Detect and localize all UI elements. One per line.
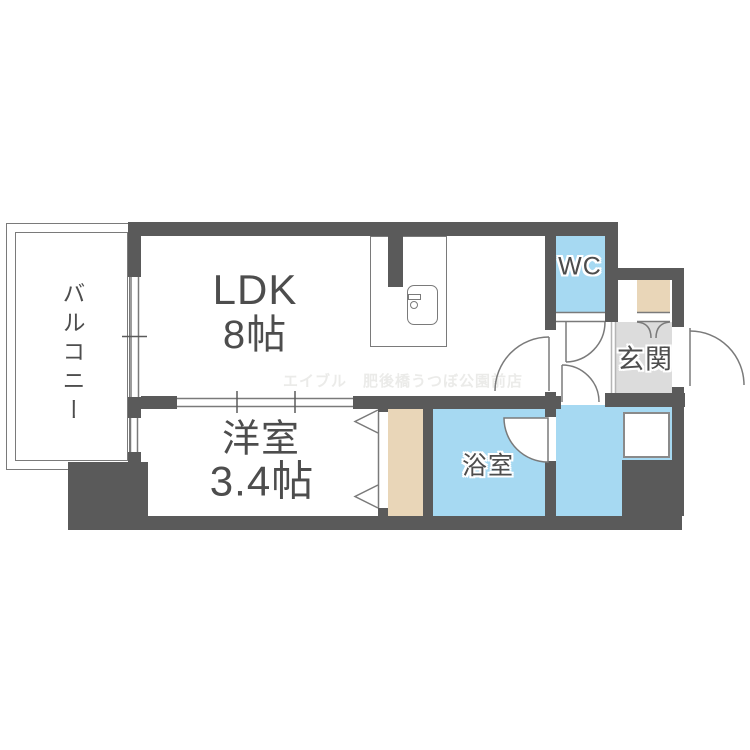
wc-door-arc (566, 322, 605, 362)
ldk-size-label: 8帖 (223, 302, 287, 360)
floor-plan: LDK 8帖 洋室 3.4帖 バルコニー WC 玄関 浴室 エイブル 肥後橋うつ… (0, 0, 750, 750)
washroom-door-arc (562, 365, 599, 402)
genkan-label: 玄関 (617, 338, 673, 377)
balcony-label: バルコニー (55, 282, 89, 427)
shoe-door-swing-right (656, 322, 670, 338)
closet-fold-arrow-top (355, 410, 378, 433)
bathroom-label: 浴室 (462, 446, 514, 482)
wc-label: WC (558, 253, 602, 282)
ldk-door-arc (495, 337, 549, 391)
entry-door-opening (672, 328, 690, 386)
western-room-size-label: 3.4帖 (210, 448, 314, 509)
entry-door-arc (690, 331, 744, 385)
shoe-door-swing-left (637, 322, 651, 338)
closet-fold-arrow-bottom (355, 485, 378, 508)
